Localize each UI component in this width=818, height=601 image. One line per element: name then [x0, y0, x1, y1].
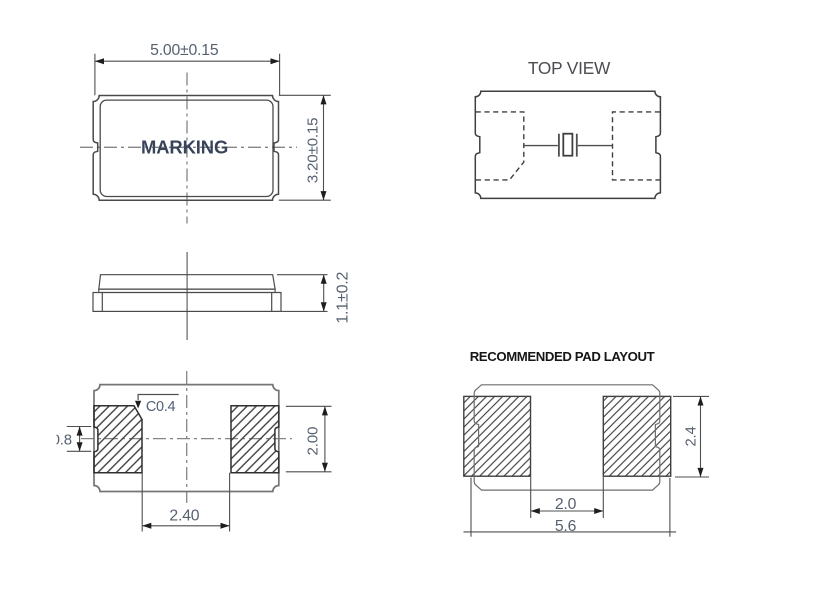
svg-text:3.20±0.15: 3.20±0.15 — [305, 118, 322, 184]
svg-text:5.00±0.15: 5.00±0.15 — [150, 42, 219, 59]
svg-text:RECOMMENDED PAD LAYOUT: RECOMMENDED PAD LAYOUT — [470, 349, 655, 364]
svg-text:TOP VIEW: TOP VIEW — [528, 58, 611, 78]
svg-text:2.00: 2.00 — [305, 427, 322, 456]
svg-text:0.8: 0.8 — [52, 432, 72, 449]
svg-text:2.0: 2.0 — [555, 496, 577, 513]
svg-text:2.4: 2.4 — [684, 427, 700, 447]
svg-text:1.1±0.2: 1.1±0.2 — [335, 271, 352, 323]
svg-text:C0.4: C0.4 — [146, 399, 176, 415]
svg-text:MARKING: MARKING — [141, 136, 228, 157]
svg-text:5.6: 5.6 — [555, 518, 577, 535]
svg-text:2.40: 2.40 — [169, 507, 199, 524]
